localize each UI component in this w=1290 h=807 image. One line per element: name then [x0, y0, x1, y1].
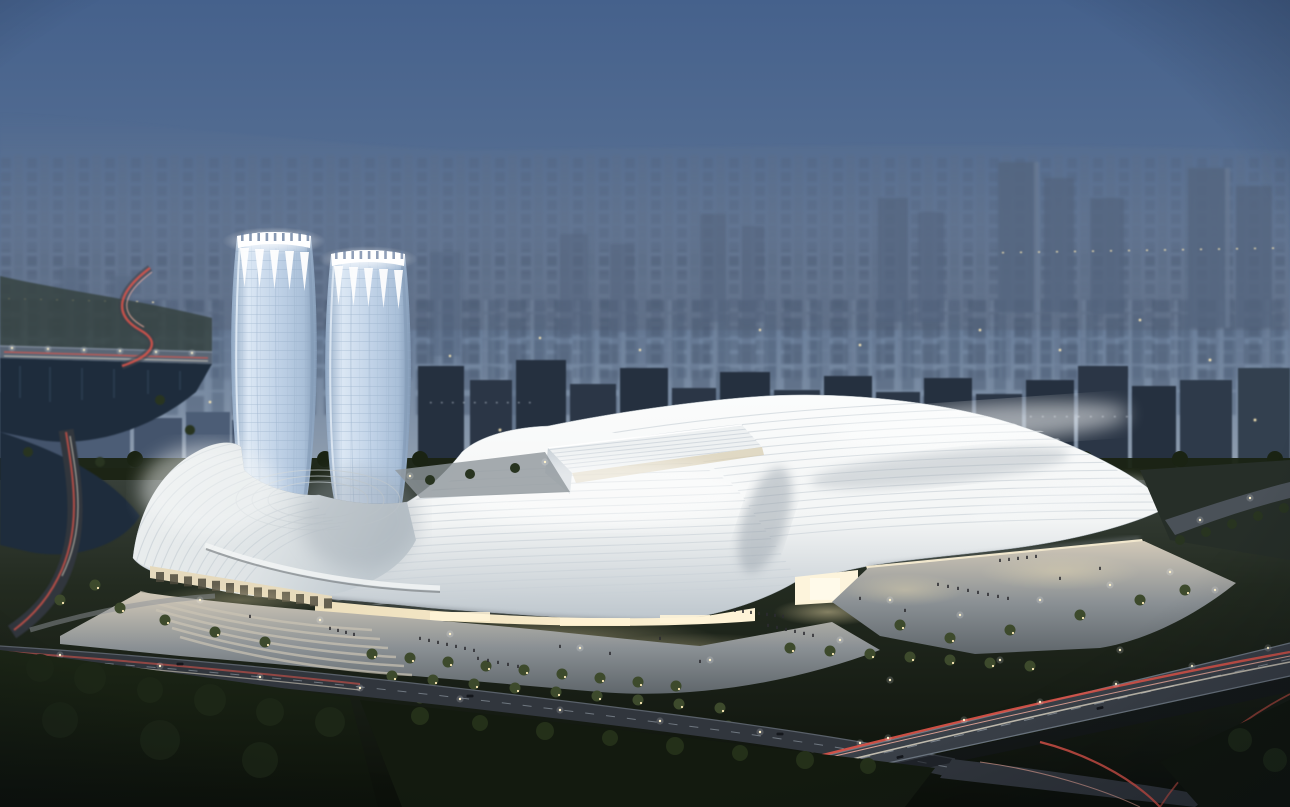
architectural-rendering-canvas [0, 0, 1290, 807]
rendering-scene [0, 0, 1290, 807]
vignette-overlay [0, 0, 1290, 807]
